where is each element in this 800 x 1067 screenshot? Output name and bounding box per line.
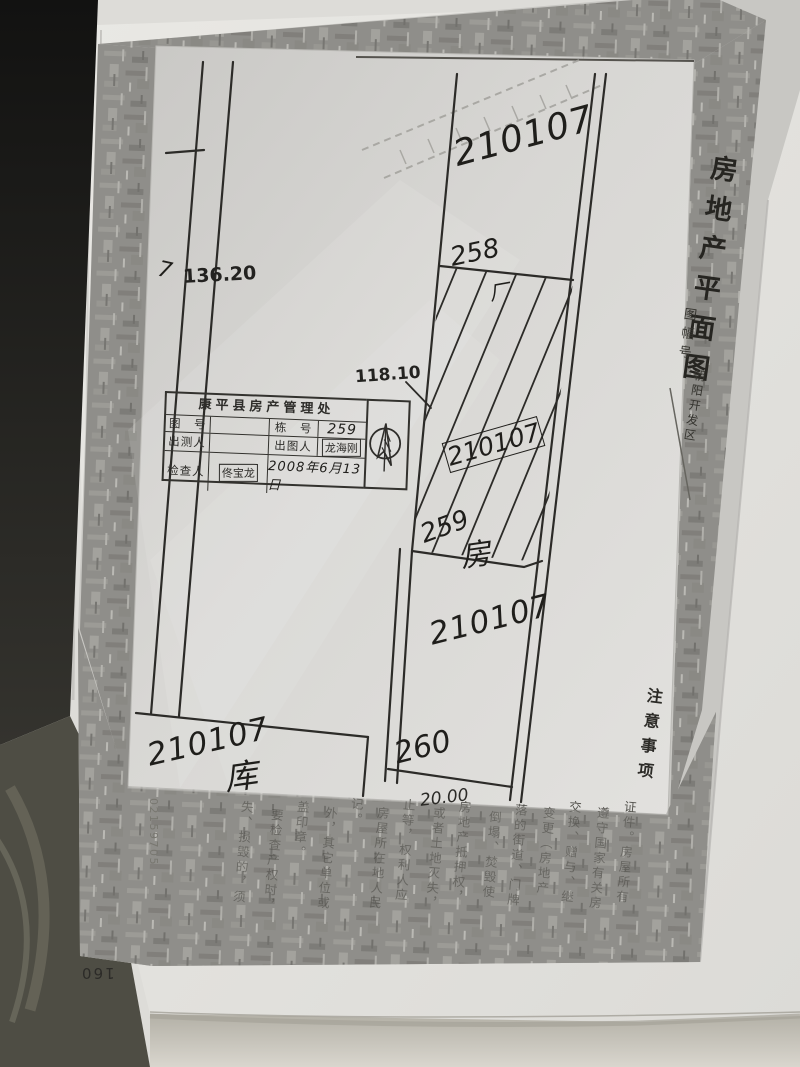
field-label-drafter: 出图人 — [269, 436, 319, 456]
serial-number: 02159705 — [147, 798, 160, 866]
field-label-surveyor: 出测人 — [165, 432, 211, 452]
name-seal-inspector: 佟宝龙 — [218, 464, 257, 482]
photo-of-property-plan-document: 证件。房屋所有 遵守国家有关房 交换、赠与、继 变更（房地产 落的街道、门牌 倒… — [0, 0, 800, 1067]
north-arrow-icon — [366, 401, 405, 486]
dim-left: 136.20 — [182, 262, 256, 288]
boundary-259-suffix: 房 — [457, 528, 493, 576]
field-value-building-no: 259 — [318, 421, 366, 439]
warehouse-suffix: 库 — [221, 748, 260, 800]
field-value-map-no — [210, 417, 270, 435]
name-seal-drafter: 龙海刚 — [322, 439, 361, 457]
north-arrow-cell — [363, 399, 410, 491]
field-label-building-no: 栋 号 — [269, 419, 319, 437]
field-value-inspector: 佟宝龙 — [208, 453, 268, 493]
field-value-surveyor — [210, 434, 270, 454]
field-label-map-no: 图 号 — [165, 415, 211, 433]
survey-office-stamp: 康平县房产管理处 图 号 栋 号 259 出测人 出图人 龙海刚 检查人 佟宝龙 — [162, 391, 411, 490]
stamp-date: 2008年6月13日 — [267, 455, 364, 497]
field-value-drafter: 龙海刚 — [318, 438, 366, 458]
page-number: 160 — [80, 964, 115, 982]
stamp-row-3: 检查人 佟宝龙 2008年6月13日 — [163, 451, 364, 497]
field-label-inspector: 检查人 — [163, 451, 209, 491]
